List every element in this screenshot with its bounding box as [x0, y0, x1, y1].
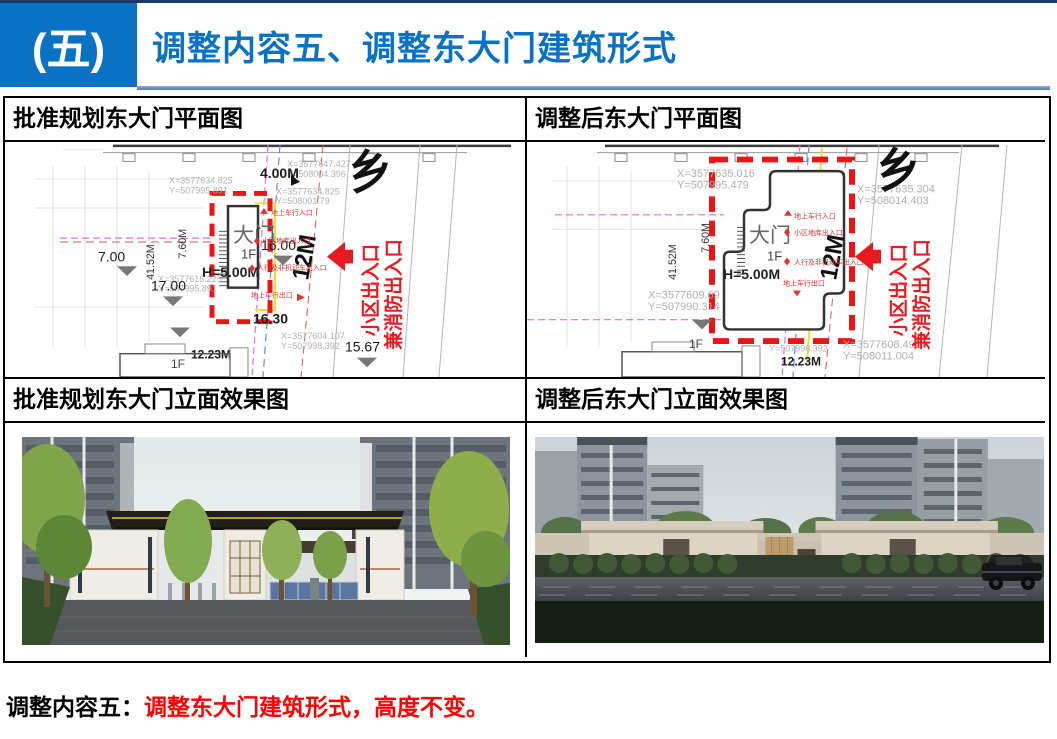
plan-after-svg: 大门 1F H=5.00M X=3577635.016 Y=507995.479… — [527, 142, 1045, 377]
svg-text:41.52M: 41.52M — [145, 244, 157, 280]
north-symbol: 乡 — [342, 142, 398, 200]
svg-text:地上车行出口: 地上车行出口 — [783, 279, 825, 288]
svg-text:X=3577608.491: X=3577608.491 — [843, 339, 921, 351]
svg-text:X=3577609.69: X=3577609.69 — [648, 289, 720, 301]
panel-elev-after-title: 调整后东大门立面效果图 — [527, 379, 1045, 423]
svg-text:15.67: 15.67 — [345, 340, 380, 355]
svg-text:X=3577634.825: X=3577634.825 — [276, 187, 340, 197]
panel-plan-before-title: 批准规划东大门平面图 — [5, 98, 525, 142]
svg-text:小区出入口: 小区出入口 — [360, 244, 381, 336]
plan-before-svg: 大门 1F H=5.00M X=3577634.825 Y=507995.891… — [5, 142, 525, 377]
svg-text:Y=508011.004: Y=508011.004 — [843, 351, 914, 363]
foreground-grass — [535, 601, 1044, 643]
entrance-arrow — [855, 242, 881, 271]
elev-after-render — [535, 437, 1044, 643]
svg-text:12.23M: 12.23M — [191, 348, 231, 362]
page-title: 调整内容五、调整东大门建筑形式 — [152, 3, 677, 87]
svg-text:Y=507995.479: Y=507995.479 — [677, 180, 749, 192]
road-edge-3 — [987, 145, 1007, 377]
svg-text:Y=508001.79: Y=508001.79 — [276, 196, 330, 206]
gate-floor: 1F — [767, 249, 782, 264]
header-divider — [137, 86, 1050, 90]
entrance-text: 小区出入口 兼消防出入口 — [360, 239, 404, 350]
svg-text:16.30: 16.30 — [253, 312, 288, 327]
road-edge-3 — [439, 145, 457, 377]
plan-after-drawing: 大门 1F H=5.00M X=3577635.016 Y=507995.479… — [527, 142, 1045, 377]
svg-text:7.00: 7.00 — [98, 250, 126, 265]
plaza-paving — [22, 600, 510, 645]
entrance-text: 小区出入口 兼消防出入口 — [888, 239, 932, 350]
svg-text:小区出入口: 小区出入口 — [888, 244, 909, 336]
panel-plan-before: 批准规划东大门平面图 — [5, 98, 527, 379]
gate-floor: 1F — [241, 247, 256, 262]
svg-text:7.60M: 7.60M — [177, 229, 189, 259]
panel-elev-before: 批准规划东大门立面效果图 — [5, 379, 527, 657]
gate-structure — [70, 511, 404, 602]
panel-plan-after-title: 调整后东大门平面图 — [527, 98, 1045, 142]
section-badge: (五) — [0, 3, 137, 87]
svg-text:1F: 1F — [689, 337, 703, 351]
elev-before-render — [22, 437, 510, 645]
svg-text:兼消防出入口: 兼消防出入口 — [911, 239, 932, 350]
elev-before-photo — [22, 437, 510, 645]
svg-text:12.23M: 12.23M — [781, 355, 821, 369]
entrance-arrow — [327, 242, 353, 271]
svg-text:地上车行入口: 地上车行入口 — [271, 208, 313, 217]
svg-text:Y=507990.314: Y=507990.314 — [648, 301, 720, 313]
svg-text:Y=507998.392: Y=507998.392 — [281, 341, 340, 351]
svg-text:地上车行出口: 地上车行出口 — [251, 290, 293, 299]
svg-text:Y=508014.403: Y=508014.403 — [857, 195, 929, 207]
svg-text:X=3577635.016: X=3577635.016 — [677, 168, 755, 180]
svg-text:兼消防出入口: 兼消防出入口 — [383, 239, 404, 350]
svg-text:Y=507998.392: Y=507998.392 — [769, 344, 828, 354]
road-edge-2 — [939, 145, 962, 377]
svg-text:人行及非机动车出入口: 人行及非机动车出入口 — [794, 257, 864, 266]
svg-text:X=3577604.107: X=3577604.107 — [281, 331, 345, 341]
north-symbol: 乡 — [870, 142, 926, 198]
gate-label: 大门 — [749, 224, 791, 247]
road-edge-2 — [403, 145, 420, 377]
gate-height: H=5.00M — [723, 267, 780, 282]
svg-text:X=3577634.825: X=3577634.825 — [169, 176, 233, 186]
slide: { "header": { "badge": "(五)", "title": "… — [0, 0, 1057, 739]
svg-text:Y=507995.891: Y=507995.891 — [169, 186, 228, 196]
plan-before-drawing: 大门 1F H=5.00M X=3577634.825 Y=507995.891… — [5, 142, 525, 377]
content-grid: 批准规划东大门平面图 — [3, 96, 1051, 663]
svg-text:人行及非机动车出入口: 人行及非机动车出入口 — [257, 263, 327, 272]
road — [535, 577, 1044, 601]
svg-text:7.60M: 7.60M — [700, 223, 712, 253]
panel-plan-after: 调整后东大门平面图 — [527, 98, 1045, 379]
caption-label: 调整内容五： — [6, 694, 144, 720]
svg-text:41.52M: 41.52M — [667, 244, 679, 280]
footer-caption: 调整内容五：调整东大门建筑形式，高度不变。 — [6, 688, 489, 722]
elev-after-photo — [535, 437, 1044, 643]
panel-elev-before-title: 批准规划东大门立面效果图 — [5, 379, 525, 423]
site-gridlines — [552, 166, 712, 348]
svg-text:小区地库出入口: 小区地库出入口 — [262, 236, 311, 245]
svg-text:1F: 1F — [171, 357, 185, 371]
svg-text:小区地库出入口: 小区地库出入口 — [794, 228, 843, 237]
panel-elev-after: 调整后东大门立面效果图 — [527, 379, 1045, 657]
svg-text:地上车行入口: 地上车行入口 — [794, 212, 836, 221]
svg-text:17.00: 17.00 — [151, 279, 186, 294]
caption-text: 调整东大门建筑形式，高度不变。 — [144, 694, 489, 720]
